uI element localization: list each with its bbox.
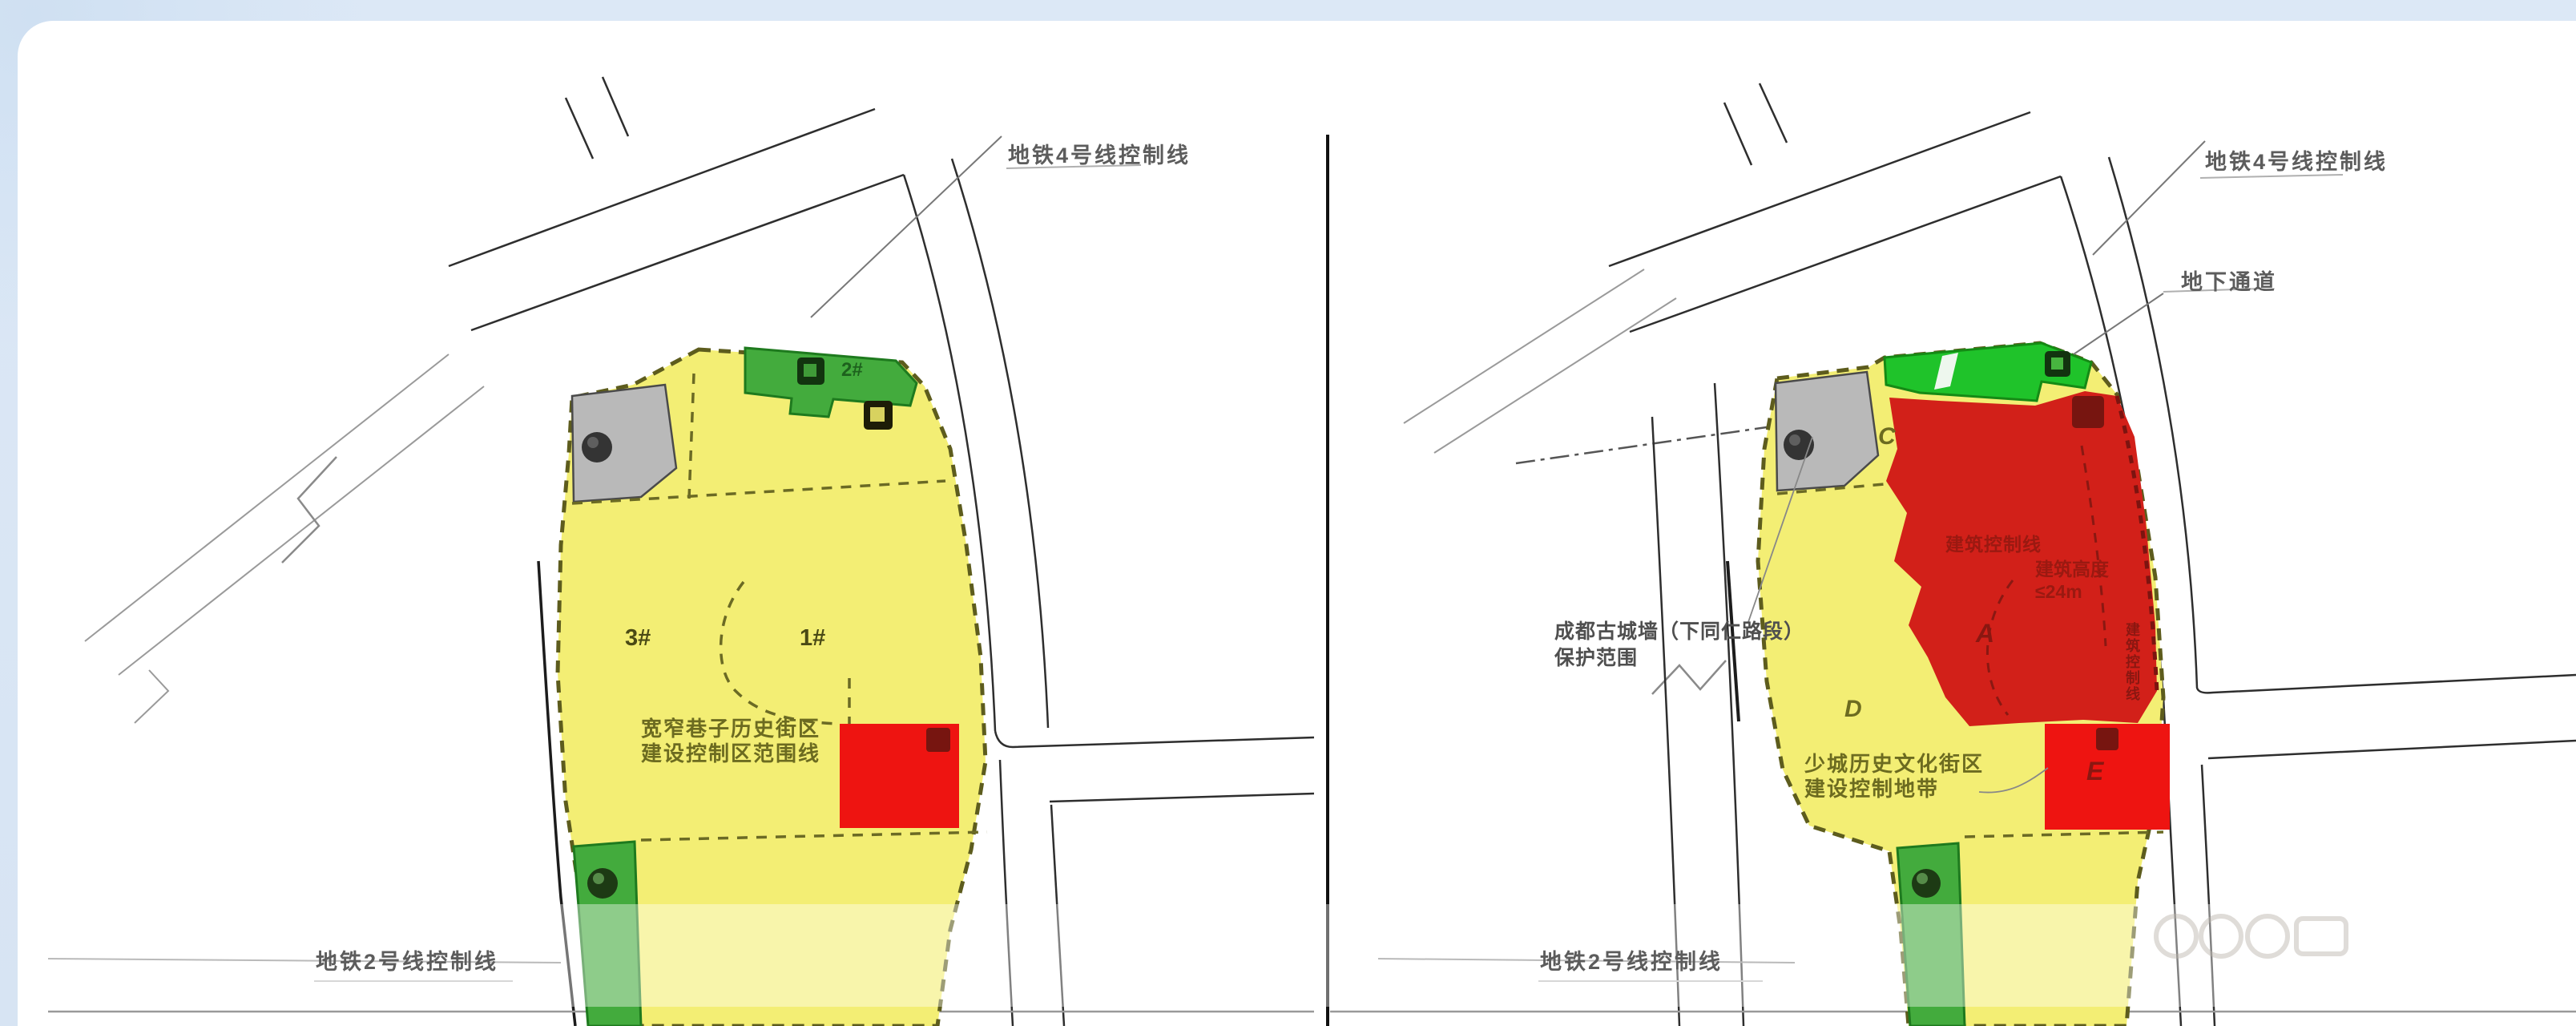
- road-edge: [1630, 176, 2061, 332]
- left-district-text: 宽窄巷子历史街区 建设控制区范围线: [641, 717, 820, 766]
- circle-marker-highlight: [593, 873, 604, 884]
- left-metro2-label: 地铁2号线控制线: [316, 944, 498, 976]
- height-limit-label: 建筑高度≤24m: [2035, 558, 2120, 603]
- road-edge: [1609, 112, 2030, 266]
- symbol-icon-glyph: [2051, 357, 2063, 370]
- corridor-zigzag: [135, 670, 168, 723]
- road-edge: [2208, 741, 2576, 758]
- underpass-leader-line: [2074, 293, 2163, 354]
- square-marker-icon: [2072, 396, 2104, 428]
- circle-marker-icon: [587, 868, 618, 899]
- right-district-text-line1: 少城历史文化街区: [1804, 752, 1984, 777]
- left-plot2-label: 2#: [841, 359, 863, 382]
- road-edge: [995, 731, 1314, 747]
- building-control-label: 建筑控制线: [1945, 529, 2042, 556]
- road-edge: [2109, 157, 2576, 693]
- metro4-corridor-line: [1404, 269, 1644, 423]
- circle-marker-highlight: [1789, 434, 1800, 446]
- square-marker-icon: [2096, 728, 2118, 750]
- right-metro2-label: 地铁2号线控制线: [1540, 944, 1723, 976]
- zone-a-label: A: [1976, 619, 1994, 648]
- zone-c-label: C: [1878, 423, 1896, 450]
- left-metro4-label: 地铁4号线控制线: [1008, 138, 1191, 169]
- edge-control-label: 建筑控制线: [2122, 622, 2143, 702]
- planning-map-canvas: [0, 0, 2576, 1026]
- left-plot1-label: 1#: [800, 625, 825, 652]
- road-edge: [1760, 83, 1787, 143]
- zone-d-label: D: [1844, 696, 1862, 723]
- zone-e-label: E: [2086, 757, 2103, 786]
- symbol-icon-glyph: [804, 364, 816, 377]
- road-edge: [1050, 794, 1314, 802]
- right-underpass-label: 地下通道: [2181, 265, 2277, 296]
- left-map: [48, 77, 1314, 1026]
- right-wall-text-line2: 保护范围: [1554, 645, 1804, 672]
- right-metro4-label: 地铁4号线控制线: [2205, 144, 2388, 176]
- right-district-text: 少城历史文化街区 建设控制地带: [1804, 752, 1984, 802]
- symbol-icon-glyph: [870, 407, 885, 422]
- metro4-corridor-line: [85, 354, 449, 641]
- left-plot3-label: 3#: [625, 625, 651, 652]
- right-wall-text-line1: 成都古城墙（下同仁路段）: [1554, 619, 1804, 645]
- circle-marker-icon: [1912, 869, 1941, 898]
- road-edge: [449, 109, 875, 266]
- metro4-corridor-line: [119, 386, 484, 675]
- circle-marker-icon: [582, 432, 612, 463]
- right-wall-text: 成都古城墙（下同仁路段） 保护范围: [1554, 619, 1804, 672]
- left-district-text-line1: 宽窄巷子历史街区: [641, 717, 820, 741]
- circle-marker-highlight: [1917, 873, 1928, 884]
- left-district-text-line2: 建设控制区范围线: [641, 741, 820, 766]
- road-edge: [566, 98, 593, 159]
- road-edge: [603, 77, 628, 136]
- metro4-corridor-line: [1434, 298, 1676, 453]
- road-edge: [1724, 103, 1752, 165]
- square-marker-icon: [926, 728, 950, 752]
- right-district-text-line2: 建设控制地带: [1804, 777, 1984, 802]
- circle-marker-highlight: [587, 437, 599, 448]
- road-edge: [471, 175, 904, 330]
